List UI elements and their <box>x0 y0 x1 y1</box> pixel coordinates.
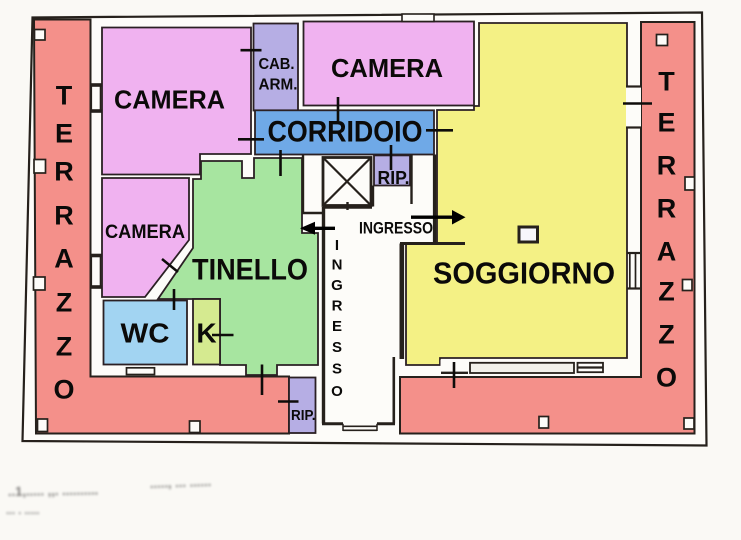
svg-text:INGRESSO: INGRESSO <box>359 219 433 238</box>
svg-text:I: I <box>335 237 339 254</box>
svg-text:E: E <box>657 108 675 138</box>
svg-text:Z: Z <box>56 332 73 362</box>
svg-text:Z: Z <box>56 288 73 318</box>
svg-text:O: O <box>53 375 74 405</box>
svg-text:S: S <box>332 361 342 378</box>
svg-text:T: T <box>658 67 675 97</box>
svg-text:R: R <box>54 157 74 187</box>
svg-text:N: N <box>332 257 343 274</box>
svg-text:R: R <box>332 298 343 315</box>
svg-text:TINELLO: TINELLO <box>192 254 308 287</box>
svg-text:Z: Z <box>658 320 675 350</box>
svg-text:A: A <box>657 237 677 267</box>
svg-text:O: O <box>331 383 343 400</box>
svg-text:CAMERA: CAMERA <box>331 53 443 83</box>
svg-text:E: E <box>332 318 342 335</box>
svg-text:CAB.: CAB. <box>259 56 295 73</box>
svg-text:SOGGIORNO: SOGGIORNO <box>433 256 615 291</box>
svg-text:T: T <box>56 81 73 111</box>
svg-text:R: R <box>54 201 74 231</box>
svg-text:S: S <box>332 339 342 356</box>
svg-text:... . .....: ... . ..... <box>6 505 40 517</box>
svg-text:RIP.: RIP. <box>291 408 316 424</box>
svg-text:WC: WC <box>121 318 170 349</box>
svg-text:CAMERA: CAMERA <box>105 222 185 243</box>
svg-text:K: K <box>196 318 216 349</box>
svg-text:R: R <box>657 151 677 181</box>
svg-text:R: R <box>657 194 677 224</box>
svg-text:O: O <box>656 363 677 393</box>
svg-text:CAMERA: CAMERA <box>114 85 225 115</box>
svg-text:..1,..... ,,. ..........: ..1,..... ,,. .......... <box>8 482 99 499</box>
svg-text:E: E <box>55 119 73 149</box>
svg-text:G: G <box>331 277 343 294</box>
svg-text:Z: Z <box>658 277 675 307</box>
svg-text:A: A <box>54 244 74 274</box>
svg-text:ARM.: ARM. <box>259 77 298 94</box>
svg-text:....., ... ......: ....., ... ...... <box>150 474 212 491</box>
svg-text:RIP.: RIP. <box>378 168 410 188</box>
svg-text:CORRIDOIO: CORRIDOIO <box>268 116 423 149</box>
